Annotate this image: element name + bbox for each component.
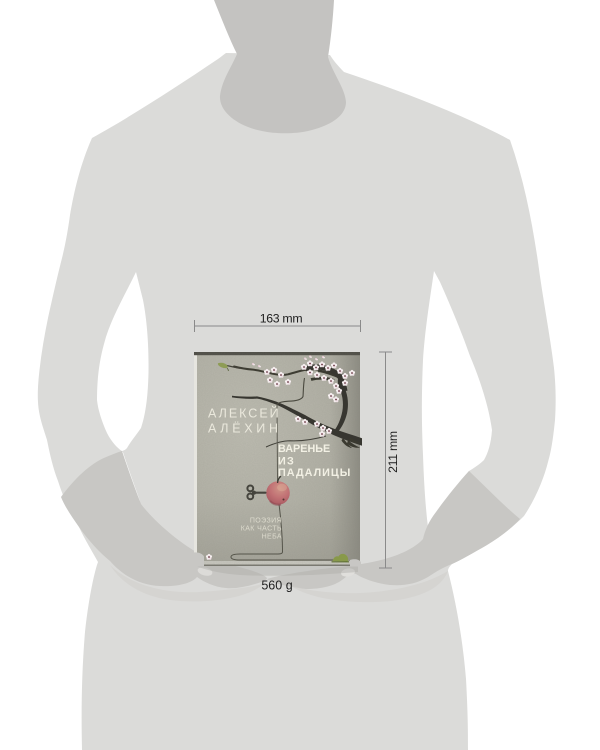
svg-text:ИЗ: ИЗ xyxy=(278,456,295,468)
svg-text:560 g: 560 g xyxy=(261,579,292,593)
svg-text:АЛЁХИН: АЛЁХИН xyxy=(208,422,282,436)
svg-text:ПОЭЗИЯ: ПОЭЗИЯ xyxy=(250,518,282,525)
svg-text:163 mm: 163 mm xyxy=(260,312,303,326)
svg-text:211 mm: 211 mm xyxy=(386,431,400,473)
svg-text:АЛЕКСЕЙ: АЛЕКСЕЙ xyxy=(208,406,281,421)
svg-text:ВАРЕНЬЕ: ВАРЕНЬЕ xyxy=(278,443,330,455)
svg-text:НЕБА: НЕБА xyxy=(262,534,282,541)
svg-text:КАК ЧАСТЬ: КАК ЧАСТЬ xyxy=(241,526,282,533)
svg-text:ПАДАЛИЦЫ: ПАДАЛИЦЫ xyxy=(278,467,351,479)
